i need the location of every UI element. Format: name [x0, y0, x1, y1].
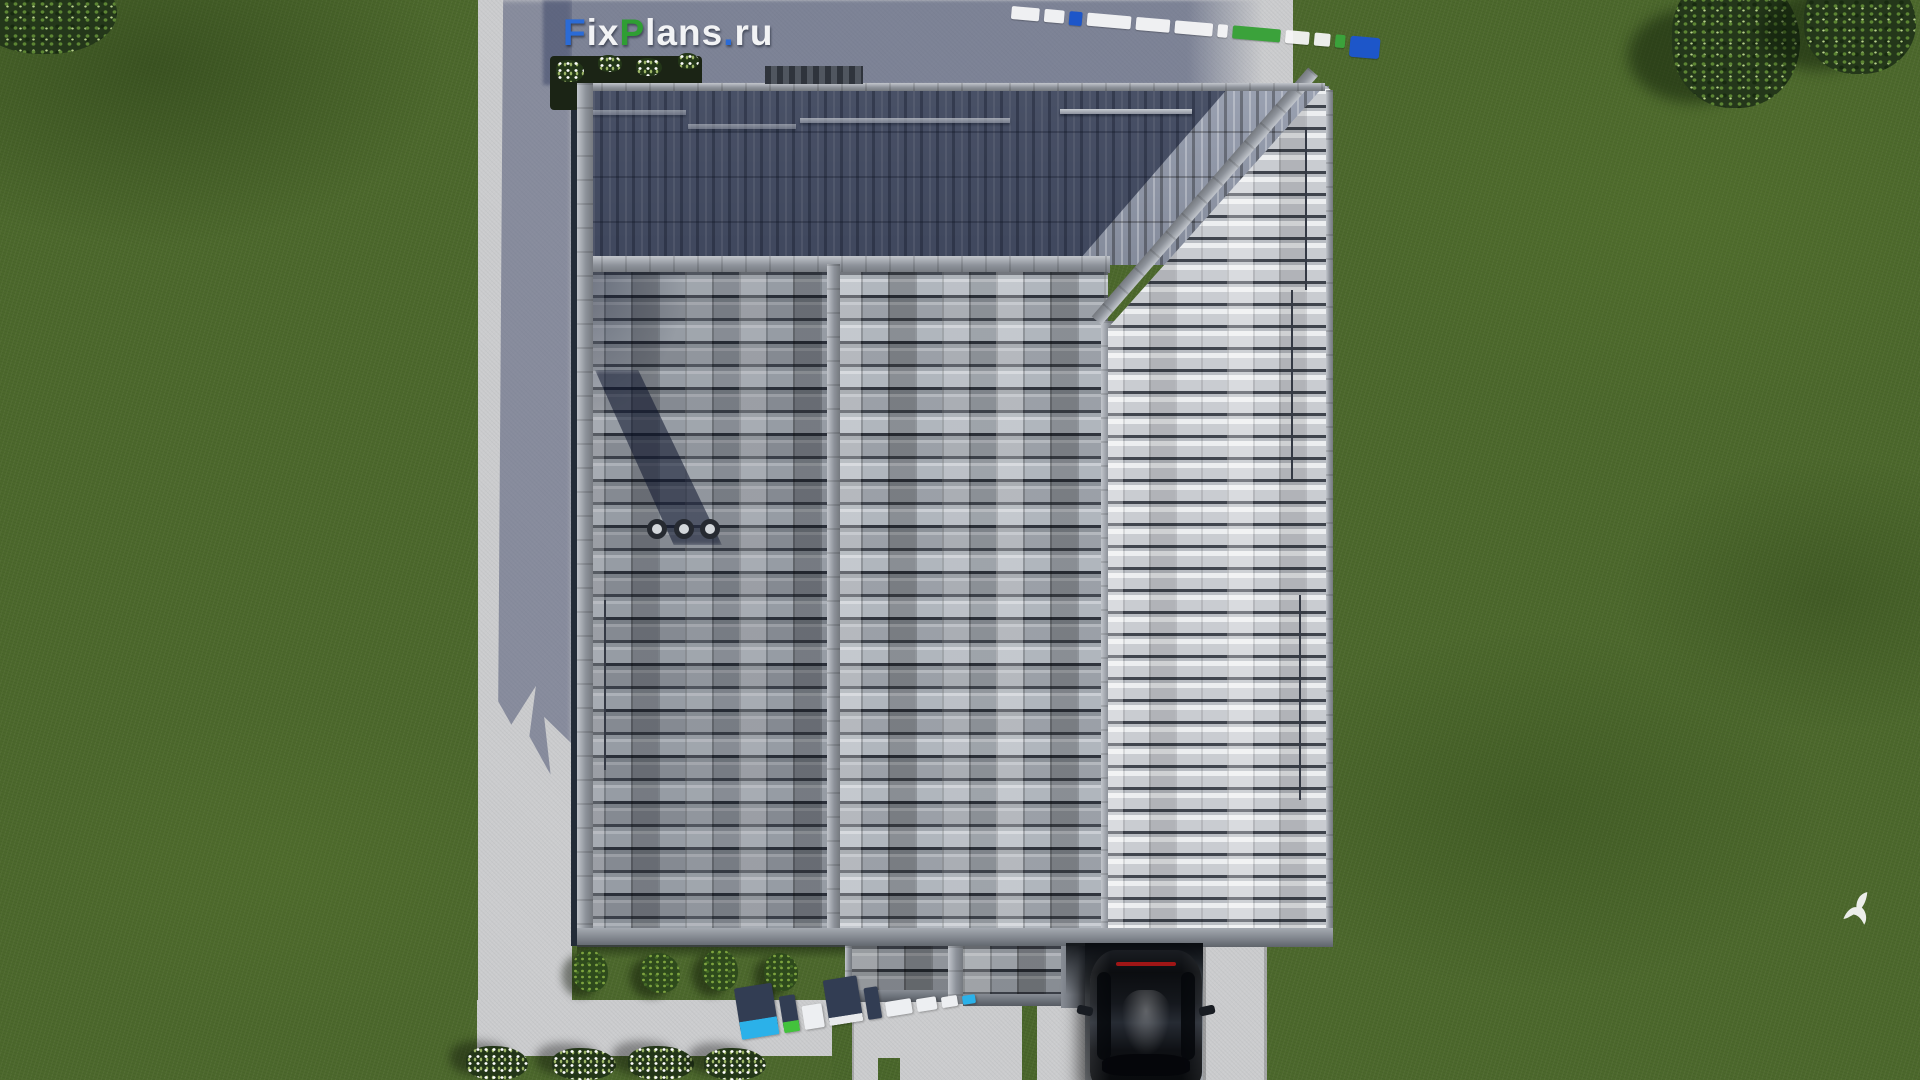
shrub [640, 953, 680, 993]
roof-edge-top [577, 83, 1325, 91]
flower-bush [556, 60, 584, 82]
roof-ledge [1060, 109, 1192, 114]
flower-bush [598, 55, 622, 72]
roof-main-ridge [577, 256, 1110, 273]
watermark-block [1349, 36, 1381, 60]
chimney-vent [700, 519, 720, 539]
flower-bush [636, 58, 662, 76]
watermark-block [823, 975, 864, 1026]
aerial-render-scene: FixPlans.ru [0, 0, 1920, 1080]
roof-south-slope-middle [834, 272, 1108, 930]
roof-ledge [688, 124, 796, 129]
watermark-block [1011, 6, 1040, 21]
watermark-block [1335, 34, 1346, 48]
flower-bush [552, 1048, 616, 1080]
car-side-window-right [1181, 972, 1195, 1060]
flower-bush [466, 1046, 528, 1080]
porch-roof-right [963, 946, 1061, 1000]
watermark-block [1314, 32, 1331, 46]
logo-segment: ru [734, 12, 773, 53]
logo-segment: lans [645, 12, 723, 53]
watermark-block [801, 1003, 825, 1030]
roof-ledge [580, 110, 686, 115]
fixplans-logo: FixPlans.ru [563, 12, 773, 54]
logo-segment: . [723, 12, 734, 53]
car-taillight-strip [1116, 962, 1176, 966]
roof-cable [604, 600, 606, 770]
watermark-block [1285, 30, 1310, 45]
chimney-top [765, 66, 863, 84]
chimney-vent [674, 519, 694, 539]
watermark-block [734, 983, 780, 1040]
shrub [702, 949, 738, 991]
roof-cable [1291, 290, 1293, 480]
car-side-window-left [1097, 972, 1111, 1060]
car-roof-highlight [1120, 990, 1172, 1060]
chimney-vent [647, 519, 667, 539]
flower-bush [678, 53, 699, 69]
roof-ridge-vertical-1 [827, 264, 840, 930]
watermark-block [1135, 17, 1170, 33]
logo-segment: ix [587, 12, 620, 53]
grass-strip-walkway-mid [1022, 1002, 1037, 1080]
roof-edge-right [1326, 90, 1333, 943]
shrub [572, 950, 608, 992]
flower-bush [704, 1048, 766, 1080]
porch-fascia-right [963, 994, 1061, 1006]
roof-cable [1299, 595, 1301, 800]
tree-canopy-top-left [0, 0, 117, 54]
car [1090, 950, 1202, 1080]
house-roof [577, 83, 1333, 947]
roof-edge-left [577, 83, 593, 947]
watermark-block [1217, 24, 1228, 38]
logo-segment: F [563, 12, 587, 53]
flower-bush [628, 1046, 694, 1080]
watermark-block [1174, 20, 1213, 36]
watermark-block [1044, 9, 1065, 24]
roof-cable [1305, 127, 1307, 290]
watermark-block [1087, 13, 1132, 30]
watermark-block [779, 994, 801, 1033]
bird [1833, 889, 1882, 936]
car-windshield [1102, 1054, 1190, 1076]
logo-segment: P [619, 12, 645, 53]
watermark-block [1069, 11, 1083, 26]
watermark-block [863, 986, 882, 1020]
watermark-block [1232, 25, 1281, 42]
roof-ledge [800, 118, 1010, 123]
grass-patch-small [878, 1058, 900, 1080]
